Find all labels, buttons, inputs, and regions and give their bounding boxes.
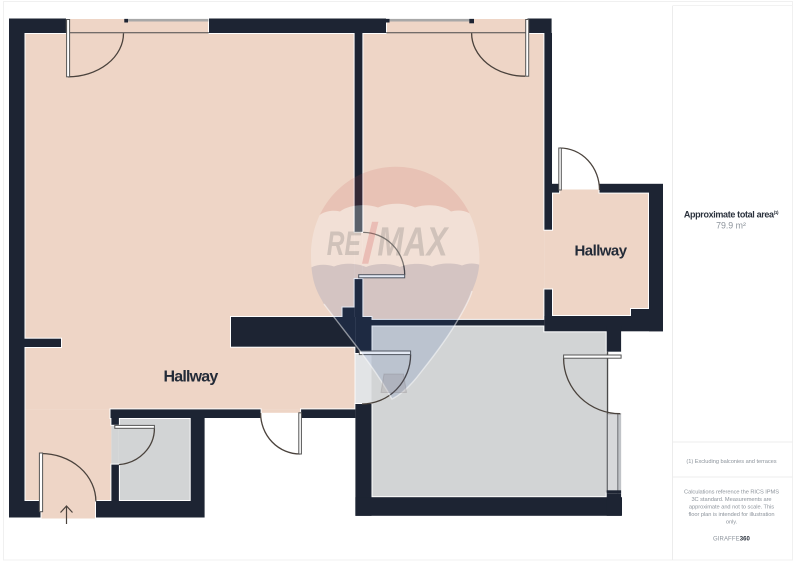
svg-text:GIRAFFE360: GIRAFFE360 [713, 537, 751, 543]
svg-text:79.9 m²: 79.9 m² [716, 221, 746, 231]
svg-text:3C standard. Measurements are: 3C standard. Measurements are [691, 497, 771, 503]
svg-text:Calculations reference the RIC: Calculations reference the RICS IPMS [684, 490, 779, 496]
svg-text:floor plan is intended for ill: floor plan is intended for illustration [689, 512, 775, 518]
svg-text:(1) Excluding balconies and te: (1) Excluding balconies and terraces [686, 459, 776, 465]
svg-text:Hallway: Hallway [164, 369, 219, 386]
svg-text:only.: only. [726, 520, 738, 526]
svg-text:Approximate total area(1): Approximate total area(1) [684, 210, 779, 220]
svg-text:approximate and not to scale.: approximate and not to scale. This [689, 505, 774, 511]
svg-text:RE: RE [327, 225, 362, 263]
svg-text:Hallway: Hallway [575, 243, 628, 260]
svg-text:MAX: MAX [377, 219, 450, 265]
